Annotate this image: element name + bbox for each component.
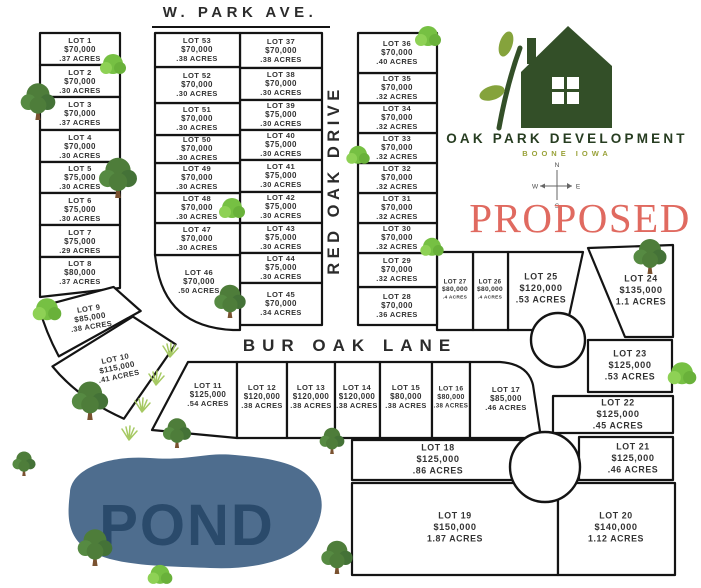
lot-31: LOT 31$70,000.32 ACRES (358, 193, 437, 223)
lot-36-acres: .40 ACRES (376, 57, 418, 66)
lot-45-acres: .34 ACRES (260, 308, 302, 317)
lot-37-name: LOT 37 (267, 37, 295, 46)
cul-de-sac (510, 432, 580, 502)
lot-17: LOT 17$85,000.46 ACRES (470, 362, 541, 438)
lot-19-name: LOT 19 (438, 511, 471, 521)
lot-29: LOT 29$70,000.32 ACRES (358, 253, 437, 287)
lot-11: LOT 11$125,000.54 ACRES (152, 362, 237, 438)
lot-33-name: LOT 33 (383, 134, 411, 143)
lot-15-acres: .38 ACRES (385, 401, 427, 410)
lot-17-acres: .46 ACRES (485, 403, 527, 412)
lot-46-name: LOT 46 (185, 268, 213, 277)
lot-27-acres: .4 ACRES (443, 295, 468, 301)
lot-3-name: LOT 3 (68, 100, 92, 109)
lot-42-price: $75,000 (265, 202, 297, 211)
lot-2-name: LOT 2 (68, 68, 92, 77)
lot-13-name: LOT 13 (297, 383, 325, 392)
lot-29-acres: .32 ACRES (376, 274, 418, 283)
lot-18-name: LOT 18 (421, 443, 454, 453)
lot-32-price: $70,000 (381, 173, 413, 182)
lot-20: LOT 20$140,0001.12 ACRES (558, 483, 675, 575)
lot-38: LOT 38$70,000.30 ACRES (240, 68, 322, 100)
lot-37: LOT 37$70,000.38 ACRES (240, 33, 322, 68)
lot-44-name: LOT 44 (267, 254, 296, 263)
lot-14-price: $120,000 (339, 392, 376, 401)
street-knuckle (531, 313, 585, 367)
lot-35-name: LOT 35 (383, 74, 412, 83)
lot-25-price: $120,000 (519, 283, 562, 293)
lot-52-name: LOT 52 (183, 71, 211, 80)
lot-34-name: LOT 34 (383, 104, 412, 113)
lot-31-acres: .32 ACRES (376, 212, 418, 221)
lot-48-acres: .30 ACRES (176, 212, 218, 221)
compass-n: N (555, 162, 560, 169)
lot-6-price: $75,000 (64, 205, 96, 214)
lot-35: LOT 35$70,000.32 ACRES (358, 73, 437, 103)
lot-5-name: LOT 5 (68, 164, 92, 173)
lot-19-price: $150,000 (433, 522, 476, 532)
lot-37-price: $70,000 (265, 46, 297, 55)
lot-42: LOT 42$75,000.30 ACRES (240, 192, 322, 223)
lot-20-price: $140,000 (594, 522, 637, 532)
lot-28-price: $70,000 (381, 301, 413, 310)
lot-5-acres: .30 ACRES (59, 182, 101, 191)
lot-4-acres: .30 ACRES (59, 151, 101, 160)
lot-1-name: LOT 1 (68, 36, 92, 45)
lot-32-acres: .32 ACRES (376, 182, 418, 191)
lot-20-acres: 1.12 ACRES (588, 534, 644, 544)
lot-17-price: $85,000 (490, 394, 522, 403)
lot-36-price: $70,000 (381, 48, 413, 57)
lot-33-price: $70,000 (381, 143, 413, 152)
lot-7-price: $75,000 (64, 237, 96, 246)
lot-19-acres: 1.87 ACRES (427, 534, 483, 544)
lot-50-price: $70,000 (181, 144, 213, 153)
lot-12-price: $120,000 (244, 392, 281, 401)
compass-w: W (532, 184, 539, 191)
lot-23-acres: .53 ACRES (605, 372, 656, 382)
lot-17-name: LOT 17 (492, 385, 520, 394)
lot-22: LOT 22$125,000.45 ACRES (553, 396, 673, 433)
pond-label: POND (99, 493, 275, 558)
lot-23-price: $125,000 (608, 360, 651, 370)
lot-50: LOT 50$70,000.30 ACRES (155, 135, 240, 163)
lot-11-name: LOT 11 (194, 381, 222, 390)
lot-7-name: LOT 7 (68, 228, 92, 237)
lot-42-name: LOT 42 (267, 193, 295, 202)
lot-41-acres: .30 ACRES (260, 180, 302, 189)
tree-icon (12, 452, 35, 477)
lot-39: LOT 39$75,000.30 ACRES (240, 100, 322, 130)
company-name: OAK PARK DEVELOPMENT (446, 131, 688, 146)
lot-49-acres: .30 ACRES (176, 182, 218, 191)
lot-14-acres: .38 ACRES (336, 401, 378, 410)
lot-31-price: $70,000 (381, 203, 413, 212)
lot-15-price: $80,000 (390, 392, 422, 401)
lot-21-price: $125,000 (611, 453, 654, 463)
lot-45-price: $70,000 (265, 299, 297, 308)
lot-43: LOT 43$75,000.30 ACRES (240, 223, 322, 253)
lot-26-acres: .4 ACRES (478, 295, 503, 301)
lot-47: LOT 47$70,000.30 ACRES (155, 223, 240, 255)
lot-42-acres: .30 ACRES (260, 211, 302, 220)
lot-29-price: $70,000 (381, 265, 413, 274)
lot-45-name: LOT 45 (267, 290, 296, 299)
lot-32: LOT 32$70,000.32 ACRES (358, 163, 437, 193)
lot-34-acres: .32 ACRES (376, 122, 418, 131)
lot-21-name: LOT 21 (616, 442, 649, 452)
lot-13: LOT 13$120,000.38 ACRES (287, 362, 335, 438)
lot-28: LOT 28$70,000.36 ACRES (358, 287, 437, 325)
lot-22-name: LOT 22 (601, 398, 634, 408)
lot-2-price: $70,000 (64, 77, 96, 86)
lot-26-price: $80,000 (477, 286, 503, 293)
lot-49-name: LOT 49 (183, 164, 211, 173)
street-label-bur-oak-lane: BUR OAK LANE (243, 336, 457, 355)
lot-40: LOT 40$75,000.30 ACRES (240, 130, 322, 160)
lot-30-acres: .32 ACRES (376, 242, 418, 251)
lot-38-price: $70,000 (265, 79, 297, 88)
lot-37-acres: .38 ACRES (260, 55, 302, 64)
lot-43-price: $75,000 (265, 233, 297, 242)
leaf-icon (496, 30, 516, 59)
lot-15: LOT 15$80,000.38 ACRES (380, 362, 432, 438)
lot-7-acres: .29 ACRES (59, 246, 101, 255)
lot-44-acres: .30 ACRES (260, 272, 302, 281)
lot-39-price: $75,000 (265, 110, 297, 119)
lot-44: LOT 44$75,000.30 ACRES (240, 253, 322, 283)
lot-3-acres: .37 ACRES (59, 118, 101, 127)
street-label-w-park-ave: W. PARK AVE. (163, 4, 318, 21)
proposed-label: PROPOSED (469, 195, 691, 241)
lot-22-price: $125,000 (596, 409, 639, 419)
lot-50-name: LOT 50 (183, 135, 211, 144)
plat-map-page: LOT 1$70,000.37 ACRESLOT 2$70,000.30 ACR… (0, 0, 701, 588)
lot-35-acres: .32 ACRES (376, 92, 418, 101)
lot-23-name: LOT 23 (613, 349, 646, 359)
lot-38-acres: .30 ACRES (260, 88, 302, 97)
logo: OAK PARK DEVELOPMENT BOONE IOWA (446, 26, 688, 158)
lot-41: LOT 41$75,000.30 ACRES (240, 160, 322, 192)
lot-8-name: LOT 8 (68, 259, 92, 268)
lot-40-name: LOT 40 (267, 131, 295, 140)
lot-29-name: LOT 29 (383, 256, 411, 265)
lot-34-price: $70,000 (381, 113, 413, 122)
lot-31-name: LOT 31 (383, 194, 412, 203)
lot-16: LOT 16$80,000.38 ACRES (432, 362, 470, 438)
lot-51-acres: .30 ACRES (176, 123, 218, 132)
lot-13-price: $120,000 (293, 392, 330, 401)
lot-47-acres: .30 ACRES (176, 243, 218, 252)
lot-35-price: $70,000 (381, 83, 413, 92)
lot-40-price: $75,000 (265, 140, 297, 149)
lot-2-acres: .30 ACRES (59, 86, 101, 95)
lot-51: LOT 51$70,000.30 ACRES (155, 103, 240, 135)
lot-51-name: LOT 51 (183, 105, 212, 114)
lot-23: LOT 23$125,000.53 ACRES (588, 340, 672, 392)
lot-53-name: LOT 53 (183, 36, 211, 45)
lot-12-acres: .38 ACRES (241, 401, 283, 410)
lot-18-price: $125,000 (416, 454, 459, 464)
lot-28-name: LOT 28 (383, 292, 411, 301)
lot-48-price: $70,000 (181, 203, 213, 212)
lot-24-name: LOT 24 (624, 274, 657, 284)
lot-53: LOT 53$70,000.38 ACRES (155, 33, 240, 67)
lot-8-price: $80,000 (64, 268, 96, 277)
lot-8-acres: .37 ACRES (59, 277, 101, 286)
lot-12-name: LOT 12 (248, 383, 276, 392)
lot-41-price: $75,000 (265, 171, 297, 180)
lot-26: LOT 26$80,000.4 ACRES (473, 252, 508, 330)
lot-36-name: LOT 36 (383, 39, 411, 48)
lot-46-price: $70,000 (183, 277, 215, 286)
lot-30-price: $70,000 (381, 233, 413, 242)
lot-53-price: $70,000 (181, 45, 213, 54)
lot-44-price: $75,000 (265, 263, 297, 272)
bush-icon (415, 26, 441, 46)
lot-40-acres: .30 ACRES (260, 149, 302, 158)
lot-33: LOT 33$70,000.32 ACRES (358, 133, 437, 163)
lot-47-price: $70,000 (181, 234, 213, 243)
lot-14: LOT 14$120,000.38 ACRES (335, 362, 380, 438)
lot-45: LOT 45$70,000.34 ACRES (240, 283, 322, 325)
lot-33-acres: .32 ACRES (376, 152, 418, 161)
lot-46-acres: .50 ACRES (178, 286, 220, 295)
lot-15-name: LOT 15 (392, 383, 421, 392)
lot-30-name: LOT 30 (383, 224, 411, 233)
lot-24-acres: 1.1 ACRES (616, 297, 667, 307)
lot-20-name: LOT 20 (599, 511, 632, 521)
lot-16-acres: .38 ACRES (434, 403, 468, 410)
lot-52-acres: .30 ACRES (176, 89, 218, 98)
lot-16-price: $80,000 (437, 394, 464, 401)
lot-43-name: LOT 43 (267, 224, 295, 233)
lot-43-acres: .30 ACRES (260, 242, 302, 251)
lot-52: LOT 52$70,000.30 ACRES (155, 67, 240, 103)
lot-21: LOT 21$125,000.46 ACRES (579, 437, 673, 480)
lot-53-acres: .38 ACRES (176, 54, 218, 63)
lot-1-acres: .37 ACRES (59, 54, 101, 63)
lot-32-name: LOT 32 (383, 164, 411, 173)
lot-26-name: LOT 26 (479, 279, 502, 286)
lot-21-acres: .46 ACRES (608, 465, 659, 475)
lot-27-name: LOT 27 (444, 279, 467, 286)
lot-41-name: LOT 41 (267, 162, 296, 171)
lot-49: LOT 49$70,000.30 ACRES (155, 163, 240, 193)
lot-49-price: $70,000 (181, 173, 213, 182)
lot-27: LOT 27$80,000.4 ACRES (437, 252, 473, 330)
lot-1-price: $70,000 (64, 45, 96, 54)
lot-25-name: LOT 25 (524, 272, 557, 282)
lot-14-name: LOT 14 (343, 383, 372, 392)
lot-39-name: LOT 39 (267, 101, 295, 110)
lot-12: LOT 12$120,000.38 ACRES (237, 362, 287, 438)
lot-7: LOT 7$75,000.29 ACRES (40, 225, 120, 257)
plat-map: LOT 1$70,000.37 ACRESLOT 2$70,000.30 ACR… (0, 0, 701, 588)
lot-6: LOT 6$75,000.30 ACRES (40, 193, 120, 225)
company-location: BOONE IOWA (522, 149, 612, 158)
bush-icon (148, 565, 173, 584)
lot-4-price: $70,000 (64, 142, 96, 151)
lot-48-name: LOT 48 (183, 194, 211, 203)
lot-4: LOT 4$70,000.30 ACRES (40, 130, 120, 162)
compass-e: E (576, 184, 581, 191)
lot-11-acres: .54 ACRES (187, 399, 229, 408)
lot-52-price: $70,000 (181, 80, 213, 89)
tree-icon (321, 541, 352, 574)
lot-28-acres: .36 ACRES (376, 310, 418, 319)
lot-18-acres: .86 ACRES (413, 466, 464, 476)
lot-34: LOT 34$70,000.32 ACRES (358, 103, 437, 133)
lot-51-price: $70,000 (181, 114, 213, 123)
grass-icon (122, 426, 137, 440)
lot-16-name: LOT 16 (439, 386, 464, 393)
lot-47-name: LOT 47 (183, 225, 211, 234)
lot-50-acres: .30 ACRES (176, 153, 218, 162)
lot-22-acres: .45 ACRES (593, 421, 644, 431)
lot-3-price: $70,000 (64, 109, 96, 118)
lot-38-name: LOT 38 (267, 70, 295, 79)
lot-6-name: LOT 6 (68, 196, 92, 205)
lot-11-price: $125,000 (190, 390, 227, 399)
street-label-red-oak-drive: RED OAK DRIVE (325, 85, 343, 275)
lot-25-acres: .53 ACRES (516, 295, 567, 305)
lot-4-name: LOT 4 (68, 133, 92, 142)
lot-13-acres: .38 ACRES (290, 401, 332, 410)
lot-5-price: $75,000 (64, 173, 96, 182)
lot-39-acres: .30 ACRES (260, 119, 302, 128)
lot-6-acres: .30 ACRES (59, 214, 101, 223)
lot-24-price: $135,000 (619, 285, 662, 295)
lot-27-price: $80,000 (442, 286, 468, 293)
